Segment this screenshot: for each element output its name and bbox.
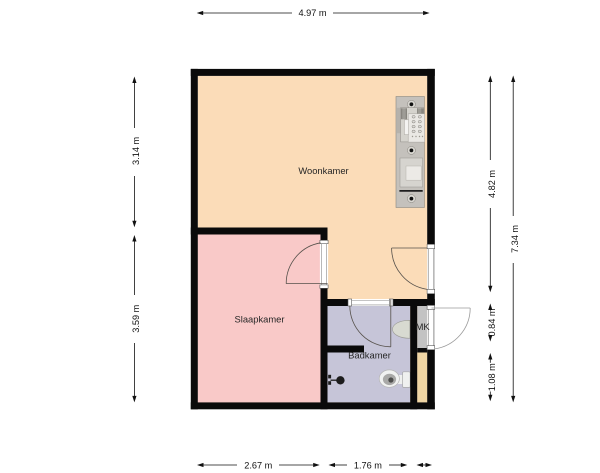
svg-text:Woonkamer: Woonkamer [298,165,348,176]
svg-text:0.84 m: 0.84 m [487,308,497,336]
svg-text:1.08 m: 1.08 m [487,363,497,391]
svg-text:1.76 m: 1.76 m [354,461,382,471]
svg-text:7.34 m: 7.34 m [510,225,520,253]
svg-text:MK: MK [416,321,431,332]
svg-text:4.82 m: 4.82 m [487,170,497,198]
svg-text:4.97 m: 4.97 m [298,8,326,18]
svg-text:3.59 m: 3.59 m [131,304,141,332]
svg-text:Badkamer: Badkamer [348,350,391,361]
svg-text:2.67 m: 2.67 m [244,461,272,471]
svg-text:Slaapkamer: Slaapkamer [234,314,284,325]
svg-text:3.14 m: 3.14 m [131,137,141,165]
